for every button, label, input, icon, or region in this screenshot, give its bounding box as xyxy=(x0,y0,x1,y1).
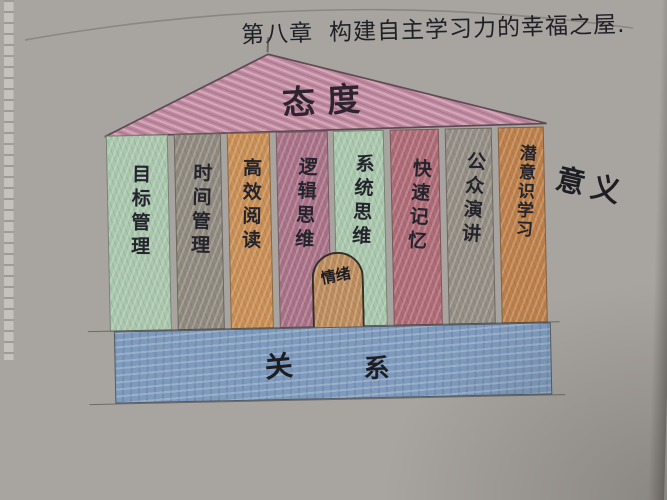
temple-column-2: 时间管理 xyxy=(174,133,225,330)
temple-base xyxy=(114,322,552,403)
temple-column-6: 快速记忆 xyxy=(390,129,443,326)
column-label: 目标管理 xyxy=(124,164,153,330)
column-label: 高效阅读 xyxy=(236,157,265,327)
notebook-photo: 第八章构建自主学习力的幸福之屋. 态度 目标管理时间管理高效阅读逻辑思维系统思维… xyxy=(0,0,667,500)
base-label-char-1: 关 xyxy=(263,344,295,386)
door-label: 情绪 xyxy=(319,262,353,288)
temple-door: 情绪 xyxy=(311,251,365,327)
temple-column-8: 潜意识学习 xyxy=(498,127,548,324)
column-label: 快速记忆 xyxy=(398,157,436,324)
notebook-page: 第八章构建自主学习力的幸福之屋. 态度 目标管理时间管理高效阅读逻辑思维系统思维… xyxy=(0,0,667,500)
column-label: 时间管理 xyxy=(183,162,215,329)
temple-drawing: 态度 目标管理时间管理高效阅读逻辑思维系统思维快速记忆公众演讲潜意识学习 情绪 … xyxy=(0,0,667,477)
temple-column-7: 公众演讲 xyxy=(445,128,496,325)
column-label: 公众演讲 xyxy=(451,150,489,323)
temple-column-1: 目标管理 xyxy=(106,134,172,331)
temple-column-3: 高效阅读 xyxy=(226,132,273,329)
roof-label: 态度 xyxy=(281,72,374,125)
base-label-char-2: 系 xyxy=(363,348,390,385)
column-label: 潜意识学习 xyxy=(506,143,540,322)
